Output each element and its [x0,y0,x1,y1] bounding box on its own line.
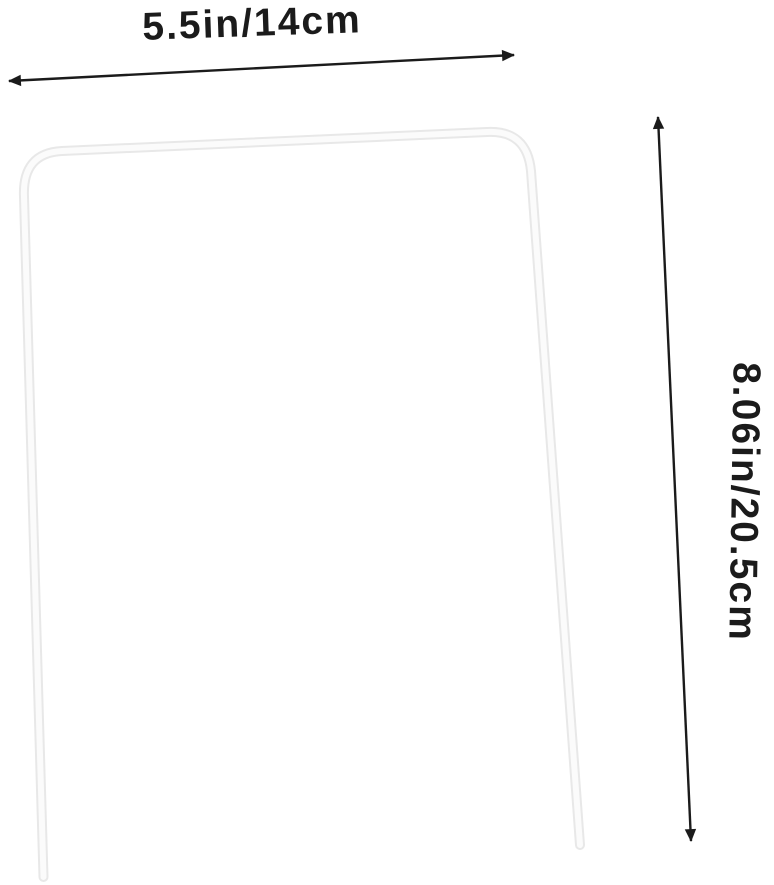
wire-frame-body [24,132,580,877]
width-dimension-label: 5.5in/14cm [142,0,363,47]
product-dimension-diagram: 5.5in/14cm 8.06in/20.5cm [0,0,774,885]
height-dimension-arrow [658,117,691,841]
diagram-canvas [0,0,774,885]
height-dimension-label: 8.06in/20.5cm [722,362,765,642]
width-dimension-arrow [9,55,514,81]
wire-frame-outline [24,132,580,877]
